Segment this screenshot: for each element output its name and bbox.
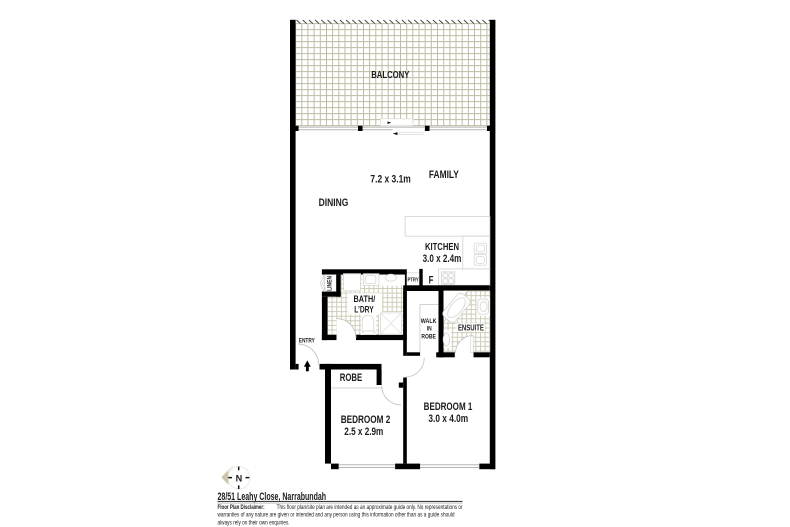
svg-text:KITCHEN: KITCHEN — [425, 242, 459, 253]
svg-text:BALCONY: BALCONY — [371, 70, 409, 81]
svg-text:BEDROOM 2: BEDROOM 2 — [341, 414, 391, 426]
svg-text:BEDROOM 1: BEDROOM 1 — [424, 401, 473, 413]
svg-text:Floor Plan Disclaimer:: Floor Plan Disclaimer: — [218, 505, 265, 511]
svg-text:ENSUITE: ENSUITE — [458, 323, 484, 333]
svg-text:warranties of any nature are g: warranties of any nature are given or in… — [217, 513, 455, 519]
svg-text:LINEN: LINEN — [328, 276, 334, 291]
svg-text:IN: IN — [427, 325, 432, 332]
svg-text:3.0 x 4.0m: 3.0 x 4.0m — [428, 413, 468, 425]
svg-text:PTRY: PTRY — [408, 277, 420, 283]
svg-text:always rely on their own enqui: always rely on their own enquiries. — [218, 520, 290, 526]
svg-text:ROBE: ROBE — [421, 334, 436, 341]
svg-text:F: F — [429, 274, 434, 286]
svg-text:3.0 x 2.4m: 3.0 x 2.4m — [423, 253, 462, 265]
svg-text:L’DRY: L’DRY — [354, 305, 374, 315]
svg-text:FAMILY: FAMILY — [429, 169, 459, 181]
svg-text:ROBE: ROBE — [340, 372, 363, 384]
svg-text:BATH/: BATH/ — [354, 294, 376, 304]
svg-text:DINING: DINING — [319, 197, 349, 209]
svg-text:WALK: WALK — [421, 318, 437, 325]
svg-text:This floor plan/site plan are: This floor plan/site plan are intended a… — [277, 505, 463, 511]
svg-text:2.5 x 2.9m: 2.5 x 2.9m — [344, 426, 383, 438]
svg-text:ENTRY: ENTRY — [299, 338, 315, 345]
svg-text:7.2 x 3.1m: 7.2 x 3.1m — [370, 173, 410, 185]
svg-text:N: N — [236, 473, 243, 483]
